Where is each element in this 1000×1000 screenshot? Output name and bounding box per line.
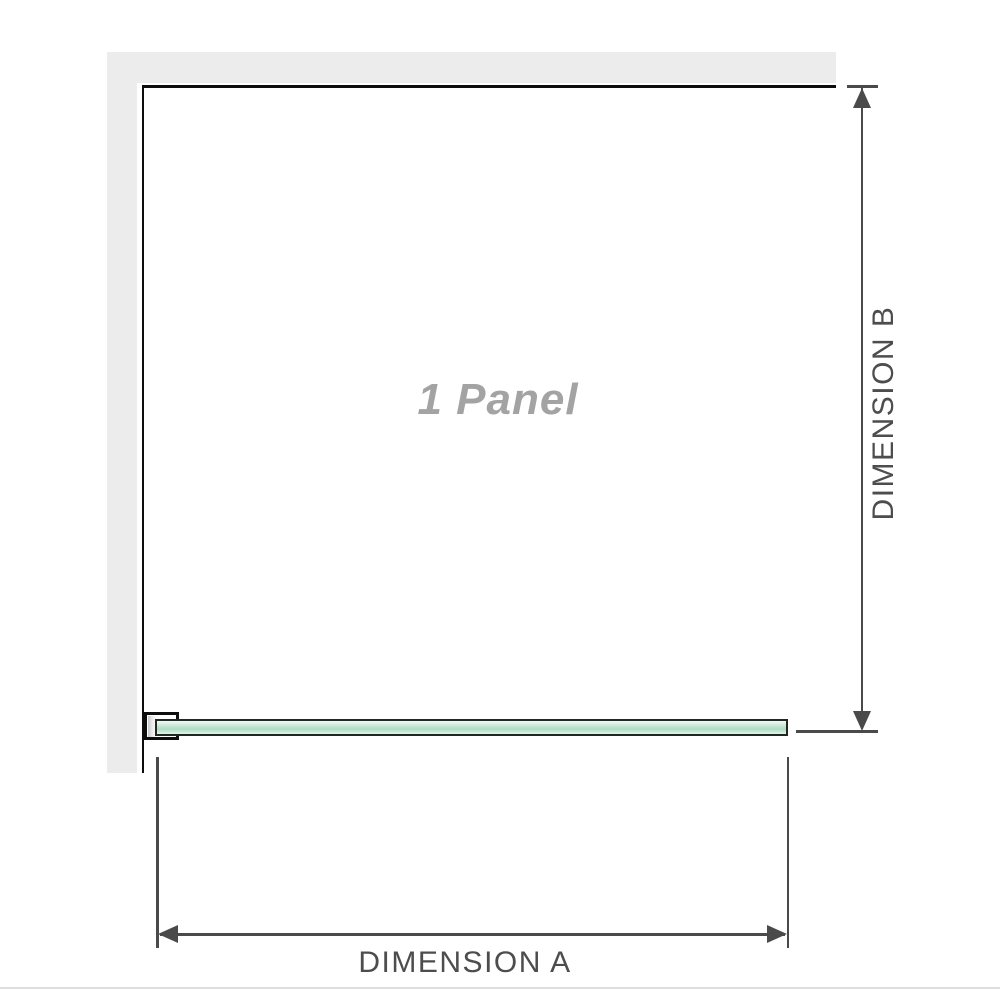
arrow-right-icon	[767, 925, 787, 943]
wall-left	[107, 52, 137, 773]
panel-outline-top	[143, 85, 836, 88]
dim-b-line	[861, 88, 864, 729]
panel-dimension-diagram: 1 Panel DIMENSION A DIMENSION B	[0, 0, 1000, 1000]
dimension-a-label: DIMENSION A	[315, 946, 615, 980]
wall-top	[107, 52, 836, 83]
page-divider	[0, 987, 1000, 989]
arrow-left-icon	[158, 925, 178, 943]
dim-a-extension-left	[156, 757, 159, 948]
panel-outline-left	[142, 85, 145, 773]
arrow-up-icon	[853, 88, 871, 108]
dimension-b-label: DIMENSION B	[867, 263, 901, 563]
arrow-down-icon	[853, 711, 871, 731]
dim-a-extension-right	[787, 757, 790, 948]
panel-count-label: 1 Panel	[398, 372, 598, 428]
dim-a-line	[160, 933, 785, 936]
glass-panel	[155, 719, 788, 736]
